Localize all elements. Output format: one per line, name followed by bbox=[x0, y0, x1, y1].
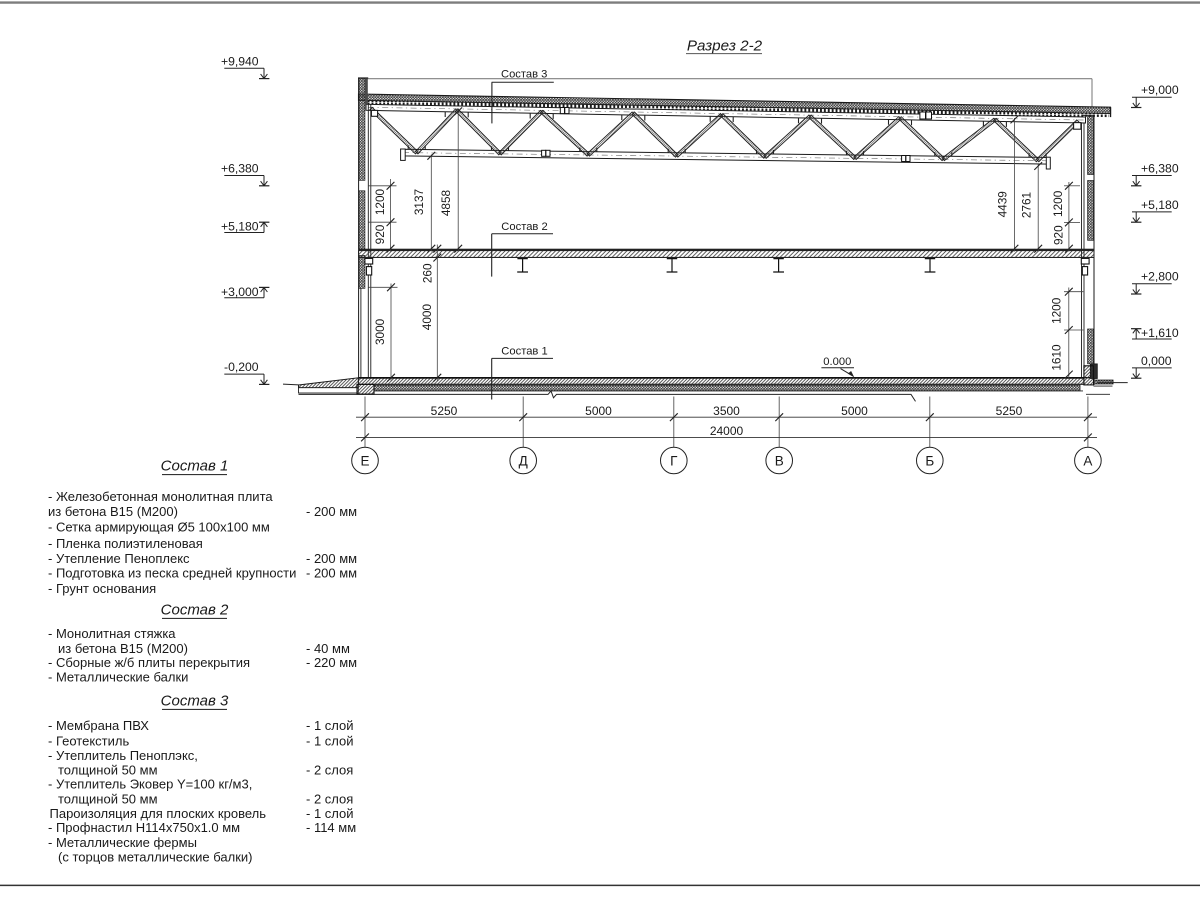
svg-text:- Грунт основания: - Грунт основания bbox=[48, 581, 156, 596]
svg-text:Состав 1: Состав 1 bbox=[161, 458, 229, 475]
svg-text:920: 920 bbox=[1052, 225, 1066, 245]
svg-text:- Геотекстиль: - Геотекстиль bbox=[48, 733, 129, 748]
svg-text:24000: 24000 bbox=[710, 424, 744, 438]
svg-text:- 220 мм: - 220 мм bbox=[306, 655, 357, 670]
svg-text:Разрез 2-2: Разрез 2-2 bbox=[687, 37, 763, 54]
svg-text:- Подготовка из песка средней: - Подготовка из песка средней крупности bbox=[48, 566, 296, 581]
svg-text:- Железобетонная монолитная п: - Железобетонная монолитная плита bbox=[48, 489, 273, 504]
svg-text:+3,000: +3,000 bbox=[221, 285, 259, 299]
svg-text:В: В bbox=[775, 453, 784, 468]
svg-text:Е: Е bbox=[360, 453, 369, 468]
svg-text:+5,180: +5,180 bbox=[221, 220, 259, 234]
svg-text:- Утеплитель Эковер Y=100 кг/м: - Утеплитель Эковер Y=100 кг/м3, bbox=[48, 777, 252, 792]
svg-text:5000: 5000 bbox=[841, 404, 868, 418]
svg-text:толщиной 50 мм: толщиной 50 мм bbox=[58, 792, 158, 807]
svg-text:1200: 1200 bbox=[373, 188, 387, 215]
svg-text:+2,800: +2,800 bbox=[1141, 270, 1179, 284]
svg-text:Б: Б bbox=[925, 453, 934, 468]
svg-text:+6,380: +6,380 bbox=[221, 162, 259, 176]
svg-text:- Мембрана ПВХ: - Мембрана ПВХ bbox=[48, 718, 149, 733]
svg-text:4858: 4858 bbox=[439, 189, 453, 216]
svg-text:- 200 мм: - 200 мм bbox=[306, 566, 357, 581]
svg-text:0.000: 0.000 bbox=[823, 356, 851, 368]
svg-text:- Утеплитель Пеноплэкс,: - Утеплитель Пеноплэкс, bbox=[48, 748, 198, 763]
svg-text:+9,000: +9,000 bbox=[1141, 83, 1179, 97]
svg-text:толщиной 50 мм: толщиной 50 мм bbox=[58, 762, 158, 777]
svg-text:- Металлические балки: - Металлические балки bbox=[48, 669, 188, 684]
svg-text:- 200 мм: - 200 мм bbox=[306, 551, 357, 566]
svg-text:5250: 5250 bbox=[431, 404, 458, 418]
svg-text:+1,610: +1,610 bbox=[1141, 326, 1179, 340]
svg-text:- 1 слой: - 1 слой bbox=[306, 806, 354, 821]
svg-text:Пароизоляция для плоских крове: Пароизоляция для плоских кровель bbox=[50, 806, 267, 821]
svg-text:из бетона В15 (М200): из бетона В15 (М200) bbox=[48, 504, 178, 519]
svg-text:+6,380: +6,380 bbox=[1141, 162, 1179, 176]
svg-text:1610: 1610 bbox=[1049, 344, 1063, 371]
svg-text:1200: 1200 bbox=[1051, 190, 1065, 217]
svg-text:0,000: 0,000 bbox=[1141, 354, 1172, 368]
svg-text:- Профнастил Н114х750х1.0 мм: - Профнастил Н114х750х1.0 мм bbox=[48, 820, 240, 835]
svg-text:из бетона В15 (М200): из бетона В15 (М200) bbox=[58, 641, 188, 656]
svg-text:- 114 мм: - 114 мм bbox=[306, 820, 356, 835]
svg-text:(с торцов металлические балки): (с торцов металлические балки) bbox=[58, 849, 253, 864]
svg-text:Состав 3: Состав 3 bbox=[501, 68, 547, 80]
svg-text:- Пленка полиэтиленовая: - Пленка полиэтиленовая bbox=[48, 536, 203, 551]
svg-text:- Утепление Пеноплекс: - Утепление Пеноплекс bbox=[48, 551, 190, 566]
svg-text:920: 920 bbox=[373, 224, 387, 244]
svg-text:+9,940: +9,940 bbox=[221, 54, 259, 68]
svg-text:Состав 2: Состав 2 bbox=[501, 221, 547, 233]
svg-text:4439: 4439 bbox=[996, 191, 1010, 217]
svg-text:- 1 слой: - 1 слой bbox=[306, 718, 354, 733]
svg-text:5000: 5000 bbox=[585, 404, 612, 418]
svg-text:4000: 4000 bbox=[420, 304, 434, 331]
svg-text:-0,200: -0,200 bbox=[224, 360, 259, 374]
svg-text:Состав 3: Состав 3 bbox=[161, 692, 229, 709]
svg-text:1200: 1200 bbox=[1049, 297, 1063, 324]
svg-text:- Монолитная стяжка: - Монолитная стяжка bbox=[48, 626, 176, 641]
svg-text:5250: 5250 bbox=[996, 404, 1023, 418]
svg-text:А: А bbox=[1083, 453, 1092, 468]
svg-text:- 1 слой: - 1 слой bbox=[306, 733, 354, 748]
svg-text:- 2 слоя: - 2 слоя bbox=[306, 792, 353, 807]
svg-text:3500: 3500 bbox=[713, 404, 740, 418]
svg-text:Д: Д bbox=[519, 453, 528, 468]
svg-text:Г: Г bbox=[670, 453, 678, 468]
svg-text:- 40 мм: - 40 мм bbox=[306, 641, 350, 656]
svg-text:+5,180: +5,180 bbox=[1141, 198, 1179, 212]
svg-text:- 200 мм: - 200 мм bbox=[306, 504, 357, 519]
svg-text:3000: 3000 bbox=[373, 318, 387, 345]
svg-text:- Сетка армирующая Ø5 100х100: - Сетка армирующая Ø5 100х100 мм bbox=[48, 520, 270, 535]
svg-text:- Сборные ж/б плиты перекрытия: - Сборные ж/б плиты перекрытия bbox=[48, 655, 250, 670]
svg-text:Состав 2: Состав 2 bbox=[161, 601, 229, 618]
svg-text:2761: 2761 bbox=[1020, 192, 1034, 218]
svg-text:- Металлические фермы: - Металлические фермы bbox=[48, 835, 197, 850]
svg-text:3137: 3137 bbox=[412, 189, 426, 215]
svg-text:260: 260 bbox=[420, 263, 434, 283]
svg-text:- 2 слоя: - 2 слоя bbox=[306, 762, 353, 777]
svg-text:Состав 1: Состав 1 bbox=[501, 346, 547, 358]
